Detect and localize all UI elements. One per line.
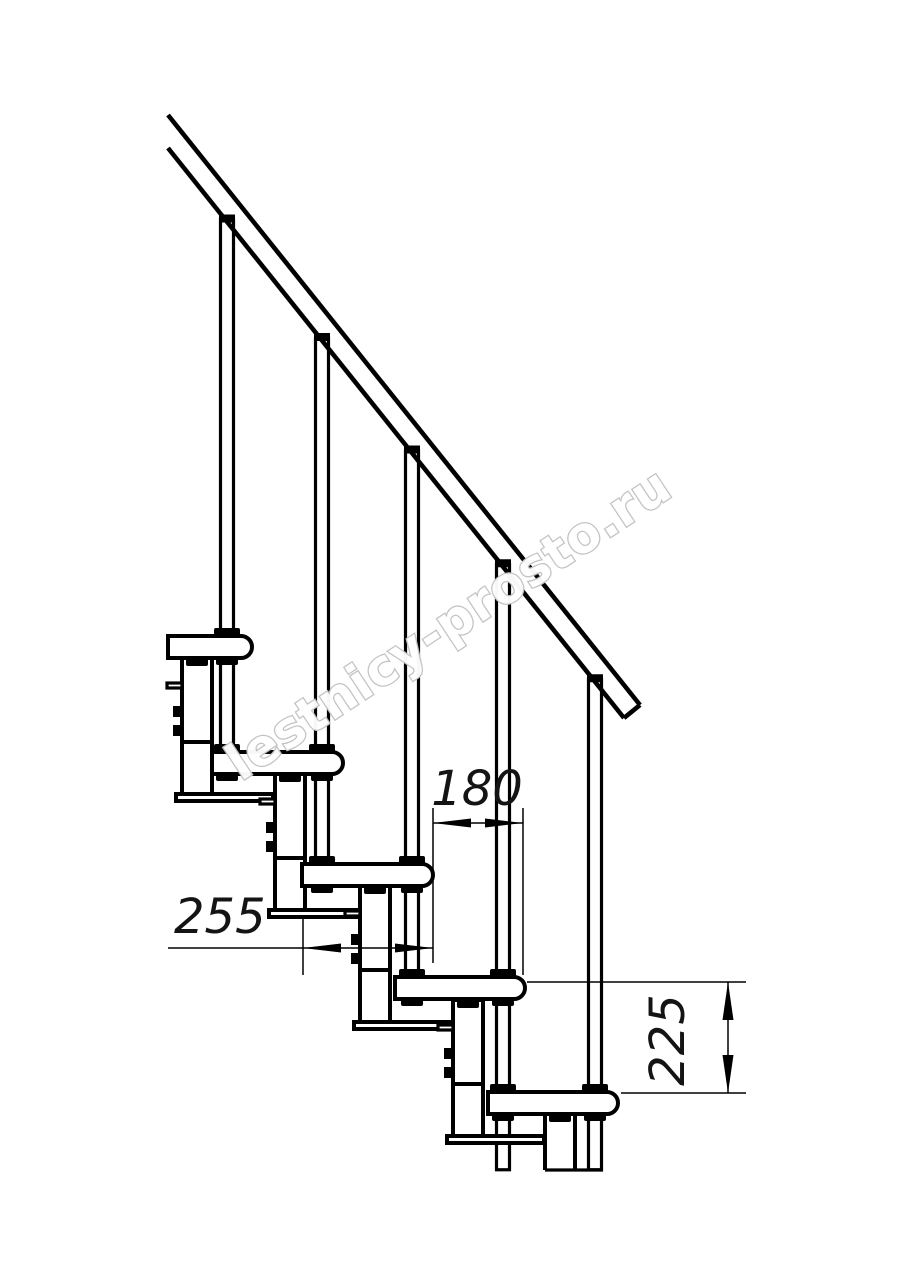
module-3-pin	[345, 911, 360, 916]
module-2-body	[275, 774, 305, 910]
tread-3-foot-b	[399, 856, 425, 864]
dim-255-arrow-left	[303, 944, 341, 953]
tread-5-nut-b	[584, 1114, 606, 1121]
module-4-bolt-b	[444, 1067, 453, 1078]
tread-4-nut-a	[401, 999, 423, 1006]
baluster-3-rail-shoe	[404, 446, 420, 454]
tread-4-foot-a	[399, 969, 425, 977]
modular-staircase-side-view: 255 180 225 lestnicy-prosto.ru	[0, 0, 914, 1280]
module-2-bolt-b	[266, 841, 275, 852]
baluster-1-tube	[221, 220, 234, 775]
module-4-body	[453, 1000, 483, 1136]
tread-3	[302, 864, 433, 886]
baluster-1-rail-shoe	[219, 215, 235, 223]
tread-5	[488, 1092, 618, 1114]
treads	[168, 636, 618, 1114]
module-4-nut	[457, 1001, 479, 1009]
tread-4	[395, 977, 525, 999]
module-1-bolt-b	[173, 725, 182, 736]
module-4-plate	[447, 1136, 544, 1143]
tread-4-foot-b	[490, 969, 516, 977]
tread-2-nut-a	[216, 774, 238, 781]
module-3	[345, 886, 451, 1029]
module-4-bolt-a	[444, 1048, 453, 1059]
tread-4-nut-b	[492, 999, 514, 1006]
module-1-body	[182, 658, 212, 794]
tread-3-foot-a	[309, 856, 335, 864]
tread-1	[168, 636, 252, 658]
baluster-5-rail-shoe	[587, 674, 603, 682]
baluster-2-tube	[316, 339, 329, 888]
dim-255-label: 255	[174, 889, 266, 945]
module-2-bolt-a	[266, 822, 275, 833]
dim-180-arrow-left	[433, 819, 471, 828]
module-3-bolt-b	[351, 953, 360, 964]
tread-5-foot-b	[582, 1084, 608, 1092]
module-4-pin	[438, 1025, 453, 1030]
tread-3-nut-b	[401, 886, 423, 893]
tread-1-foot	[214, 628, 240, 636]
handrail-end-cap	[624, 705, 640, 718]
tread-5-nut-a	[492, 1114, 514, 1121]
dimension-step-rise: 225	[527, 982, 746, 1093]
module-3-body	[360, 886, 390, 1022]
dim-225-arrow-top	[723, 982, 734, 1020]
tread-3-nut-a	[311, 886, 333, 893]
module-2-pin	[260, 799, 275, 804]
module-2	[260, 774, 366, 917]
watermark-text: lestnicy-prosto.ru	[216, 456, 682, 792]
module-1-bolt-a	[173, 706, 182, 717]
tread-1-nut	[216, 658, 238, 665]
dim-180-label: 180	[431, 761, 523, 817]
module-3-bolt-a	[351, 934, 360, 945]
baluster-3-tube	[406, 451, 419, 1000]
module-4	[438, 1000, 544, 1143]
tread-2-nut-b	[311, 774, 333, 781]
module-1-pin	[167, 683, 182, 688]
baluster-4-tube	[497, 565, 510, 1170]
dim-225-arrow-bottom	[723, 1055, 734, 1093]
baluster-2-rail-shoe	[314, 333, 330, 341]
staircase-drawing-page: 255 180 225 lestnicy-prosto.ru	[0, 0, 914, 1280]
tread-5-foot-a	[490, 1084, 516, 1092]
dim-225-label: 225	[640, 994, 696, 1086]
